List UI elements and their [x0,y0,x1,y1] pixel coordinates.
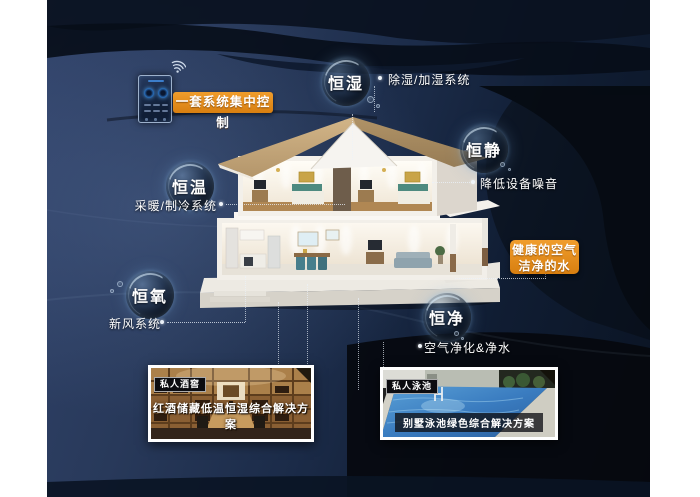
bubble-constant-oxygen: 恒氧 [126,271,174,319]
connector-temperature [226,204,345,205]
infographic-page: 一套系统集中控制 健康的空气 洁净的水 恒湿 恒静 恒温 恒氧 恒净 除湿/加湿… [0,0,700,497]
mini-bubble [454,331,459,336]
bubble-constant-purity: 恒净 [423,293,471,341]
panel-knob-left [144,88,154,98]
connector-healthy-box [455,278,546,279]
wine-cellar-caption: 红酒储藏低温恒湿综合解决方案 [151,400,311,432]
connector-wine-photo-b [307,284,308,364]
house-lower-floor [217,218,488,280]
healthy-box-line1: 健康的空气 [510,242,579,258]
connector-quiet [432,182,472,183]
mini-bubble [508,168,511,171]
annotation-dehumidify-humidify-system: 除湿/加湿系统 [388,71,470,88]
central-control-label: 一套系统集中控制 [173,92,273,113]
mini-bubble [367,96,374,103]
mini-bubble [110,289,114,293]
wine-cellar-photo: 私人酒窖 红酒储藏低温恒湿综合解决方案 [148,365,314,442]
connector-humidity-to-roof [374,86,375,112]
poster-canvas: 一套系统集中控制 健康的空气 洁净的水 恒湿 恒静 恒温 恒氧 恒净 除湿/加湿… [47,0,650,497]
connector-oxygen [167,322,245,323]
node-quiet [471,180,475,184]
connector-pool-photo-a [358,298,359,390]
connector-pool-photo-b [383,342,384,367]
pool-corner-ribbon [540,370,555,385]
panel-title-bar [148,80,164,82]
wine-cellar-corner-ribbon [296,368,311,383]
mini-bubble [117,281,123,287]
mini-bubble [376,104,380,108]
connector-control-to-roof [352,114,353,160]
annotation-air-water-purification: 空气净化&净水 [424,339,511,356]
node-temperature [219,202,223,206]
healthy-box-line2: 洁净的水 [510,258,579,274]
healthy-air-water-box: 健康的空气 洁净的水 [510,240,579,274]
wine-cellar-tag: 私人酒窖 [154,377,206,392]
bubble-constant-humidity: 恒湿 [322,58,370,106]
annotation-fresh-air-system: 新风系统 [109,315,161,332]
pool-tag: 私人泳池 [386,379,438,394]
smart-control-panel [138,75,172,123]
annotation-heating-cooling-system: 采暖/制冷系统 [127,197,217,214]
pool-caption: 别墅泳池绿色综合解决方案 [395,413,543,432]
connector-oxygen-vertical [245,276,246,322]
node-humidity [378,76,382,80]
mini-bubble [500,162,505,167]
annotation-reduce-equipment-noise: 降低设备噪音 [480,175,558,192]
wifi-icon [168,59,186,75]
pool-photo: 私人泳池 别墅泳池绿色综合解决方案 [380,367,558,440]
panel-knob-right [158,88,168,98]
node-purity [418,344,422,348]
connector-wine-photo-a [278,302,279,364]
